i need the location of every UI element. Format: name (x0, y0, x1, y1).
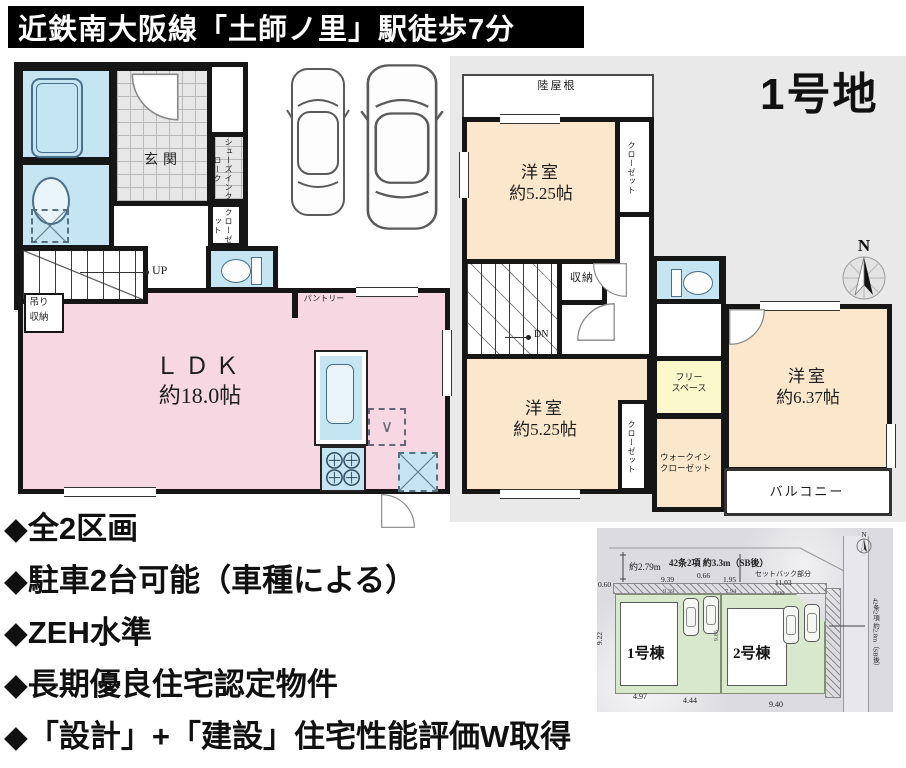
stove (320, 446, 366, 492)
door-arc-icon (728, 308, 766, 346)
lot-number-title: 1号地 (760, 58, 878, 122)
wic-line2: クローゼット (660, 463, 722, 474)
site-number: 11.03 (775, 578, 792, 587)
door-arc-icon (130, 72, 180, 122)
up-line (80, 272, 144, 273)
free-space-label: フリー スペース (658, 372, 720, 395)
window (886, 424, 896, 468)
dn-dot (526, 335, 531, 340)
compass-icon: N (836, 236, 892, 304)
bedroom1-name: 洋室 (481, 162, 601, 183)
site-left-dim: 約2.79m (629, 560, 661, 573)
closet-1f-label: クローゼット (212, 207, 234, 245)
window (356, 287, 418, 297)
feature-item: ◆ZEH水準 (4, 607, 571, 659)
bedroom3-label: 洋室 約6.37帖 (748, 366, 868, 409)
bedroom2-size: 約5.25帖 (485, 419, 605, 440)
feature-item: ◆全2区画 (4, 503, 571, 555)
window (500, 114, 560, 124)
window (500, 489, 580, 499)
compass-n-label: N (858, 236, 871, 255)
ldk-name: ＬＤＫ (90, 352, 310, 382)
bathroom (18, 66, 114, 162)
feature-item: ◆長期優良住宅認定物件 (4, 659, 571, 711)
site-right-dim: 42条2項 約2.8m（SB後） (871, 598, 878, 710)
walk-in-closet-label: ウォークイン クローゼット (656, 452, 722, 473)
toilet-tank-icon (671, 269, 682, 297)
flyer-page: 近鉄南大阪線「土師ノ里」駅徒歩7分 1号地 ＬＤＫ 約18.0帖 玄関 シューズ… (0, 0, 906, 768)
up-label: UP (152, 263, 167, 278)
site-top-dim: 42条2項 約3.3m（SB後） (669, 556, 769, 569)
window (64, 487, 156, 497)
station-banner: 近鉄南大阪線「土師ノ里」駅徒歩7分 (8, 6, 584, 48)
bedroom2-label: 洋室 約5.25帖 (485, 398, 605, 441)
bedroom2-name: 洋室 (485, 398, 605, 419)
site-number: 9.40 (769, 700, 783, 709)
site-number: 9.22 (597, 632, 604, 645)
dn-line (505, 337, 527, 338)
car-icon (360, 62, 444, 232)
pantry-label: パントリー (298, 294, 350, 304)
free-space-line1: フリー (658, 372, 720, 383)
balcony-label: バルコニー (752, 484, 862, 500)
ldk-size: 約18.0帖 (90, 382, 310, 410)
station-banner-text: 近鉄南大阪線「土師ノ里」駅徒歩7分 (18, 6, 515, 48)
washroom (18, 160, 114, 250)
toilet-2f (652, 256, 724, 304)
kitchen-counter (314, 350, 368, 446)
ldk-label: ＬＤＫ 約18.0帖 (90, 352, 310, 410)
dn-label: DN (534, 329, 548, 342)
site-number: 4.97 (633, 692, 647, 701)
site-number: 1.95 (723, 575, 736, 584)
site-number: 9.85 (713, 630, 720, 641)
site-number: 9.39 (661, 575, 674, 584)
bedroom3-size: 約6.37帖 (748, 387, 868, 408)
fridge-space-icon: ∨ (368, 408, 406, 446)
kitchen-counter-top (320, 356, 362, 440)
toilet-icon (221, 259, 251, 283)
site-number: 0.66 (697, 571, 710, 580)
toilet-icon (683, 271, 713, 295)
wic-line1: ウォークイン (660, 452, 722, 463)
site-number: 0.60 (598, 580, 611, 589)
compass-n-small: N (861, 531, 866, 539)
toilet-tank-icon (251, 257, 262, 285)
genkan-label: 玄関 (128, 152, 198, 170)
site-number: 4.44 (683, 696, 697, 705)
washer-space-icon (31, 209, 69, 243)
stove-burners-icon (322, 448, 364, 490)
car-icon (286, 66, 350, 218)
site-number: 9.96 (773, 590, 784, 597)
site-number: 9.39 (663, 588, 674, 595)
feature-list: ◆全2区画 ◆駐車2台可能（車種による） ◆ZEH水準 ◆長期優良住宅認定物件 … (4, 503, 571, 763)
door-arc-icon (592, 262, 628, 298)
closet-2f-upper-label: クローゼット (626, 128, 637, 208)
compass-icon-small: N (853, 530, 875, 556)
up-dot (144, 270, 149, 275)
flat-roof-label: 陸屋根 (512, 80, 602, 94)
feature-item: ◆「設計」+「建設」住宅性能評価W取得 (4, 711, 571, 763)
bathtub-icon (31, 78, 83, 158)
feature-item: ◆駐車2台可能（車種による） (4, 555, 571, 607)
window (442, 330, 452, 396)
toilet-1f (206, 246, 278, 292)
site-number: 7.94 (725, 588, 736, 595)
bedroom1-size: 約5.25帖 (481, 183, 601, 204)
site-plan: 1号棟 2号棟 約2.79m 42条2項 約3.3m（SB後） セットバック部分… (597, 528, 893, 712)
closet-2f-lower-label: クローゼット (626, 408, 637, 486)
window (760, 301, 840, 311)
free-space-line2: スペース (658, 383, 720, 394)
hanging-storage-label: 吊り収納 (28, 296, 50, 326)
bedroom1-label: 洋室 約5.25帖 (481, 162, 601, 205)
window (459, 152, 469, 198)
stairs-2f (462, 259, 562, 359)
bedroom3-name: 洋室 (748, 366, 868, 387)
shoes-in-cloak-label: シューズインクローク (212, 136, 234, 202)
appliance-space-icon (398, 452, 438, 492)
door-arc-icon (576, 302, 616, 342)
kitchen-sink-icon (326, 364, 354, 424)
